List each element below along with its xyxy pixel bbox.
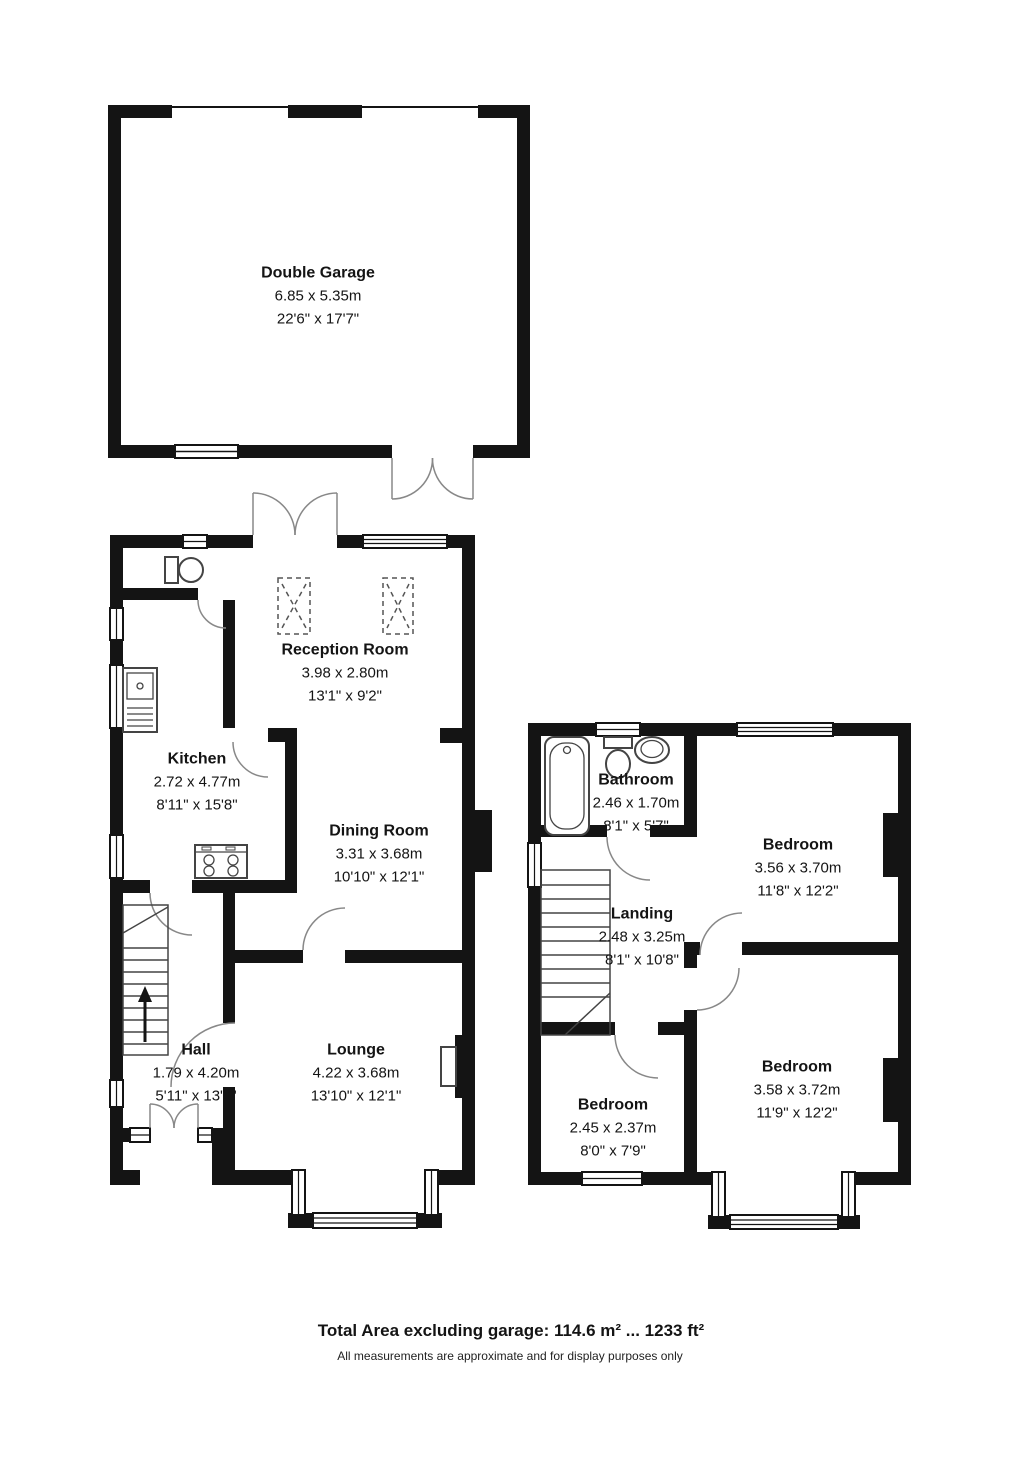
floor-plan-svg (0, 0, 1020, 1474)
room-name: Reception Room (281, 639, 408, 662)
room-size-metric: 6.85 x 5.35m (275, 285, 362, 308)
room-label-dining-room: Dining Room 3.31 x 3.68m 10'10" x 12'1" (329, 820, 429, 889)
room-size-imperial: 13'10" x 12'1" (311, 1085, 402, 1108)
room-name: Bedroom (578, 1094, 648, 1117)
room-size-imperial: 8'1" x 10'8" (605, 949, 679, 972)
room-label-kitchen: Kitchen 2.72 x 4.77m 8'11" x 15'8" (154, 748, 241, 817)
floor-plan: Double Garage 6.85 x 5.35m 22'6" x 17'7"… (0, 0, 1020, 1474)
room-name: Bathroom (598, 769, 674, 792)
room-size-imperial: 13'1" x 9'2" (308, 685, 382, 708)
room-name: Hall (181, 1039, 210, 1062)
room-name: Bedroom (763, 834, 833, 857)
room-label-reception-room: Reception Room 3.98 x 2.80m 13'1" x 9'2" (281, 639, 408, 708)
room-name: Landing (611, 903, 673, 926)
room-label-landing: Landing 2.48 x 3.25m 8'1" x 10'8" (599, 903, 686, 972)
stove-icon (195, 845, 247, 878)
room-label-double-garage: Double Garage 6.85 x 5.35m 22'6" x 17'7" (261, 262, 375, 331)
room-name: Kitchen (168, 748, 227, 771)
room-size-metric: 3.98 x 2.80m (302, 662, 389, 685)
room-name: Dining Room (329, 820, 429, 843)
room-size-metric: 4.22 x 3.68m (313, 1062, 400, 1085)
room-label-bedroom-2: Bedroom 3.58 x 3.72m 11'9" x 12'2" (754, 1056, 841, 1125)
room-name: Double Garage (261, 262, 375, 285)
room-size-imperial: 10'10" x 12'1" (334, 866, 425, 889)
room-label-bedroom-1: Bedroom 3.56 x 3.70m 11'8" x 12'2" (755, 834, 842, 903)
room-name: Lounge (327, 1039, 385, 1062)
room-size-metric: 2.46 x 1.70m (593, 792, 680, 815)
room-size-metric: 2.72 x 4.77m (154, 771, 241, 794)
ground-floor (110, 493, 492, 1228)
room-size-imperial: 5'11" x 13'9" (155, 1085, 236, 1108)
room-name: Bedroom (762, 1056, 832, 1079)
disclaimer-text: All measurements are approximate and for… (337, 1349, 683, 1363)
room-size-imperial: 11'9" x 12'2" (756, 1102, 837, 1125)
room-size-metric: 3.31 x 3.68m (336, 843, 423, 866)
skylight-symbols (278, 578, 413, 634)
room-size-metric: 3.56 x 3.70m (755, 857, 842, 880)
garage-french-doors (392, 458, 473, 499)
bath-icon (545, 737, 589, 835)
room-size-imperial: 8'11" x 15'8" (156, 794, 237, 817)
skylight-icon (383, 578, 413, 634)
room-size-imperial: 8'0" x 7'9" (580, 1140, 646, 1163)
room-label-bedroom-3: Bedroom 2.45 x 2.37m 8'0" x 7'9" (570, 1094, 657, 1163)
garage-window (175, 445, 238, 458)
fireplace-icon (441, 1047, 456, 1086)
room-label-hall: Hall 1.79 x 4.20m 5'11" x 13'9" (153, 1039, 240, 1108)
room-label-bathroom: Bathroom 2.46 x 1.70m 8'1" x 5'7" (593, 769, 680, 838)
room-size-imperial: 11'8" x 12'2" (757, 880, 838, 903)
room-size-imperial: 8'1" x 5'7" (603, 815, 669, 838)
room-size-metric: 1.79 x 4.20m (153, 1062, 240, 1085)
room-size-metric: 2.45 x 2.37m (570, 1117, 657, 1140)
total-area-text: Total Area excluding garage: 114.6 m² ..… (318, 1321, 704, 1341)
room-size-metric: 2.48 x 3.25m (599, 926, 686, 949)
stairs-up-arrow-icon (138, 986, 152, 1042)
skylight-icon (278, 578, 310, 634)
toilet-icon (165, 557, 203, 583)
room-size-imperial: 22'6" x 17'7" (277, 308, 359, 331)
sink-icon (635, 737, 669, 763)
sink-icon (123, 668, 157, 732)
room-size-metric: 3.58 x 3.72m (754, 1079, 841, 1102)
room-label-lounge: Lounge 4.22 x 3.68m 13'10" x 12'1" (311, 1039, 402, 1108)
